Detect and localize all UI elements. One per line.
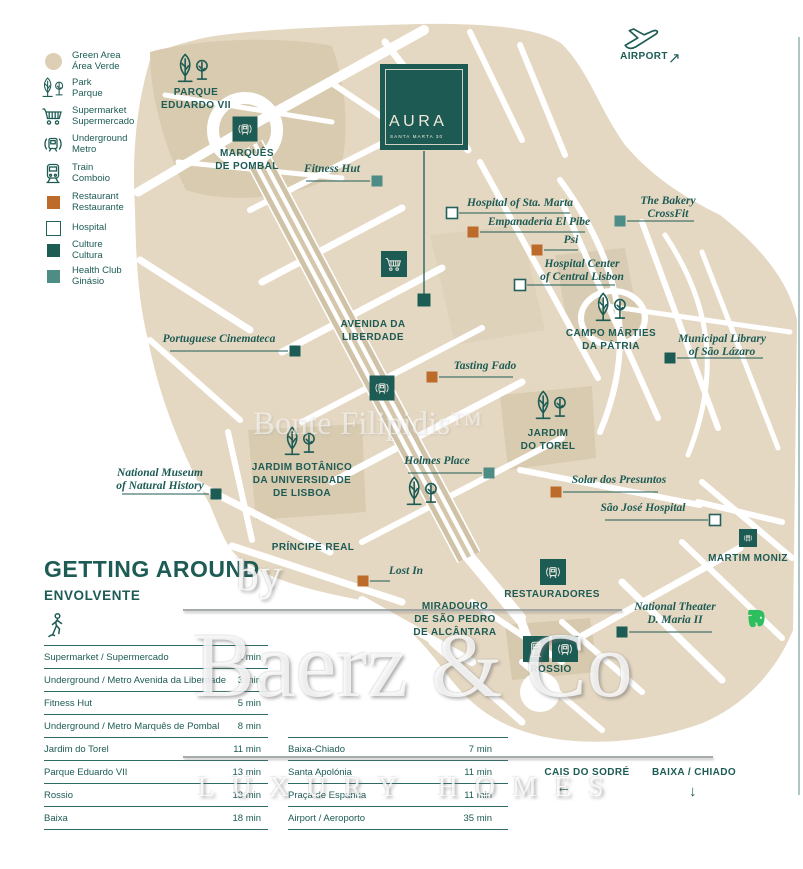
- row-value: 7 min: [469, 744, 508, 755]
- row-label: Parque Eduardo VII: [44, 767, 232, 778]
- row-value: 11 min: [233, 744, 268, 755]
- walk-time-row: Fitness Hut5 min: [44, 692, 268, 715]
- map-screenshot: Green AreaÁrea VerdeParkParqueSupermarke…: [0, 0, 803, 869]
- marker-sao-jose-hospital: [710, 515, 721, 526]
- area-label-parque-eduardo-vii: PARQUEEDUARDO VII: [86, 86, 306, 112]
- poi-label-tasting-fado: Tasting Fado: [365, 360, 605, 373]
- row-label: Rossio: [44, 790, 232, 801]
- row-label: Fitness Hut: [44, 698, 238, 709]
- legend-item-train: TrainComboio: [38, 157, 110, 189]
- green-area-swatch: [45, 53, 62, 70]
- train-station-icon: [523, 636, 549, 662]
- evernote-elephant-icon: [745, 607, 768, 630]
- row-value: 11 min: [464, 790, 508, 801]
- walk-time-row: Supermarket / Supermercado1 min: [44, 646, 268, 669]
- row-value: 3 min: [238, 675, 268, 686]
- poi-label-bakery-crossfit: The BakeryCrossFit: [548, 195, 788, 220]
- legend-label: Hospital: [68, 222, 106, 234]
- walk-time-row: Underground / Metro Marquês de Pombal8 m…: [44, 715, 268, 738]
- area-label-airport: AIRPORT: [534, 50, 754, 63]
- marker-fitness-hut: [372, 176, 383, 187]
- poi-label-holmes-place: Holmes Place: [317, 455, 557, 468]
- health-swatch: [47, 270, 60, 283]
- getting-around-subtitle: ENVOLVENTE: [44, 588, 141, 603]
- row-value: 11 min: [464, 767, 508, 778]
- row-label: Praça de Espanha: [288, 790, 464, 801]
- area-label-miradouro-sao-pedro-alcantara: MIRADOURODE SÃO PEDRODE ALCÂNTARA: [345, 600, 565, 639]
- legend-label: Green AreaÁrea Verde: [68, 50, 121, 73]
- marker-tasting-fado: [427, 372, 438, 383]
- row-label: Jardim do Torel: [44, 744, 233, 755]
- health-icon: [38, 260, 68, 292]
- legend-label: TrainComboio: [68, 162, 110, 185]
- legend-item-health: Health ClubGinásio: [38, 260, 122, 292]
- poi-label-municipal-library: Municipal Libraryof São Lázaro: [602, 333, 803, 358]
- transit-time-row: Airport / Aeroporto35 min: [288, 807, 508, 830]
- transport-times-table: Baixa-Chiado7 minSanta Apolónia11 minPra…: [288, 737, 508, 830]
- walk-time-row: Underground / Metro Avenida da Liberdade…: [44, 669, 268, 692]
- aura-title: AURA: [389, 113, 447, 131]
- row-label: Supermarket / Supermercado: [44, 652, 238, 663]
- arrow-baixa-chiado: ↓: [689, 783, 697, 800]
- marker-holmes-place: [484, 468, 495, 479]
- transit-time-row: Santa Apolónia11 min: [288, 761, 508, 784]
- watermark-rule-top: [183, 609, 622, 611]
- culture-swatch: [47, 244, 60, 257]
- poi-label-hospital-center-lisbon: Hospital Centerof Central Lisbon: [462, 258, 702, 283]
- area-label-jardim-do-torel: JARDIMDO TOREL: [438, 427, 658, 453]
- train-icon: [38, 157, 68, 189]
- row-value: 13 min: [232, 790, 268, 801]
- legend-label: UndergroundMetro: [68, 133, 127, 156]
- row-value: 5 min: [238, 698, 268, 709]
- legend-label: Health ClubGinásio: [68, 265, 122, 288]
- transit-time-row: Praça de Espanha11 min: [288, 784, 508, 807]
- walk-time-row: Rossio13 min: [44, 784, 268, 807]
- marker-solar-dos-presuntos: [551, 487, 562, 498]
- area-label-rossio: ROSSIO: [441, 663, 661, 676]
- supermarket-station-icon: [381, 251, 407, 277]
- walking-icon: [44, 612, 68, 638]
- restaurant-swatch: [47, 196, 60, 209]
- poi-label-portuguese-cinemateca: Portuguese Cinemateca: [99, 333, 339, 346]
- airplane-icon: [625, 29, 657, 48]
- poi-label-lost-in: Lost In: [286, 565, 526, 578]
- poi-label-solar-dos-presuntos: Solar dos Presuntos: [499, 474, 739, 487]
- area-label-martim-moniz: MARTIM MONIZ: [638, 552, 803, 565]
- row-label: Baixa: [44, 813, 232, 824]
- area-label-baixa-chiado: BAIXA / CHIADO: [584, 766, 803, 779]
- row-label: Underground / Metro Avenida da Liberdade: [44, 675, 238, 686]
- row-label: Underground / Metro Marquês de Pombal: [44, 721, 238, 732]
- arrow-airport: ↗: [668, 49, 681, 67]
- marker-portuguese-cinemateca: [290, 346, 301, 357]
- walking-times-table: Supermarket / Supermercado1 minUndergrou…: [44, 645, 268, 830]
- legend-item-underground: UndergroundMetro: [38, 128, 127, 160]
- legend-label: RestaurantRestaurante: [68, 191, 124, 214]
- poi-label-national-museum-natural-history: National Museumof Natural History: [40, 467, 280, 492]
- poi-label-psi: Psi: [451, 234, 691, 247]
- row-value: 35 min: [463, 813, 508, 824]
- row-value: 1 min: [238, 652, 268, 663]
- aura-subtitle: SANTA MARTA 30: [390, 134, 443, 139]
- row-value: 13 min: [232, 767, 268, 778]
- aura-logo: AURA SANTA MARTA 30: [380, 64, 468, 150]
- watermark-rule-bottom: [183, 756, 713, 758]
- poi-label-sao-jose-hospital: São José Hospital: [523, 502, 763, 515]
- walk-time-row: Baixa18 min: [44, 807, 268, 830]
- arrow-cais-do-sodre: ←: [556, 779, 571, 796]
- row-value: 8 min: [238, 721, 268, 732]
- row-label: Airport / Aeroporto: [288, 813, 463, 824]
- poi-label-fitness-hut: Fitness Hut: [212, 163, 452, 176]
- row-label: Baixa-Chiado: [288, 744, 469, 755]
- area-label-principe-real: PRÍNCIPE REAL: [203, 541, 423, 554]
- legend-label: CultureCultura: [68, 239, 103, 262]
- underground-icon: [38, 128, 68, 160]
- row-value: 18 min: [232, 813, 268, 824]
- row-label: Santa Apolónia: [288, 767, 464, 778]
- aura-location-marker: [418, 294, 431, 307]
- walk-time-row: Parque Eduardo VII13 min: [44, 761, 268, 784]
- marker-national-theater-d-maria: [617, 627, 628, 638]
- getting-around-title: GETTING AROUND: [44, 556, 260, 583]
